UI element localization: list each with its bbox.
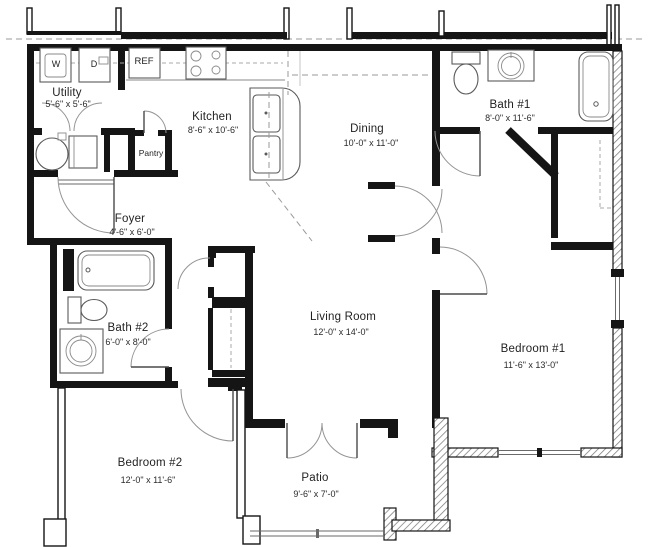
- living-room-dims: 12'-0" x 14'-0": [313, 327, 368, 337]
- bath1-dims: 8'-0" x 11'-6": [485, 113, 535, 123]
- bath1-door: [435, 131, 480, 176]
- bath2-dims: 6'-0" x 8'-0": [105, 337, 150, 347]
- bath2-label: Bath #2: [107, 322, 148, 334]
- foyer-dims: 4'-6" x 6'-0": [109, 227, 154, 237]
- foyer-label: Foyer: [115, 213, 145, 225]
- utility-dims: 5'-6" x 5'-6": [45, 99, 90, 109]
- dryer-label: D: [91, 59, 98, 69]
- patio-dims: 9'-6" x 7'-0": [293, 489, 338, 499]
- bath1-toilet: [452, 52, 480, 64]
- patio-label: Patio: [301, 472, 328, 484]
- dining-hall-door-upper: [395, 189, 442, 236]
- patio-door-left: [287, 423, 322, 458]
- pantry-label: Pantry: [139, 148, 164, 158]
- bath2-tub: [78, 251, 154, 290]
- floor-plan-canvas: W D REF Utility 5'-6" x 5'-6" Kitchen 8'…: [0, 0, 650, 547]
- dining-dims: 10'-0" x 11'-0": [344, 138, 399, 148]
- patio-door-right: [322, 423, 357, 458]
- hall-closet-door: [178, 258, 210, 289]
- bath1-label: Bath #1: [489, 99, 530, 111]
- bedroom1-door: [440, 247, 487, 294]
- entry-door: [58, 177, 114, 233]
- bath2-door: [131, 329, 169, 367]
- utility-label: Utility: [52, 87, 82, 99]
- washer-label: W: [52, 59, 61, 69]
- dining-label: Dining: [350, 123, 384, 135]
- bedroom1-dims: 11'-6" x 13'-0": [504, 360, 559, 370]
- refrigerator-label: REF: [135, 56, 154, 67]
- breezeway-band: [6, 5, 646, 46]
- bedroom1-label: Bedroom #1: [501, 343, 566, 355]
- hvac-unit: [69, 136, 97, 168]
- kitchen-label: Kitchen: [192, 111, 232, 123]
- bedroom2-door: [181, 389, 233, 441]
- living-room-label: Living Room: [310, 311, 376, 323]
- pantry-door: [144, 111, 166, 133]
- bath2-toilet: [68, 297, 81, 323]
- walls: [27, 44, 622, 438]
- bath1-tub: [579, 52, 613, 121]
- bedroom2-dims: 12'-0" x 11'-6": [121, 475, 176, 485]
- exterior-hatched-walls: [384, 51, 624, 540]
- bedroom2-label: Bedroom #2: [118, 457, 183, 469]
- kitchen-dims: 8'-6" x 10'-6": [188, 125, 238, 135]
- dining-hall-door-lower: [395, 186, 442, 233]
- floor-plan-page: W D REF Utility 5'-6" x 5'-6" Kitchen 8'…: [0, 0, 650, 547]
- water-heater: [36, 138, 68, 170]
